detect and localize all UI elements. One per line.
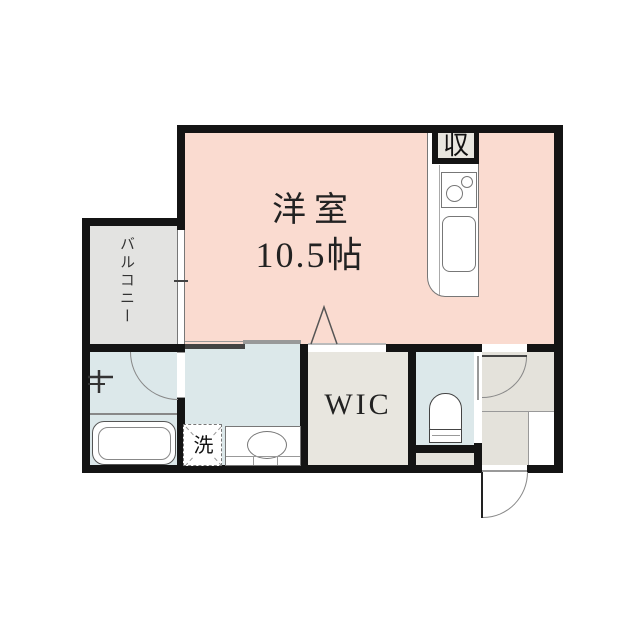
balcony-window	[177, 230, 185, 344]
wall-balcony-top	[82, 218, 185, 226]
vanity-drawer-div-2	[277, 456, 278, 465]
vanity-counter	[225, 426, 301, 466]
wic-label: WIC	[308, 388, 408, 422]
entrance-door-arc	[483, 472, 528, 518]
main-room-label: 洋室 10.5帖	[185, 190, 435, 278]
entry-tataki-floor	[528, 412, 554, 465]
balcony-label: バルコニー	[116, 236, 137, 341]
balcony-window-tick	[174, 280, 188, 282]
bathtub-inner	[98, 427, 171, 460]
main-room-size: 10.5帖	[185, 233, 435, 278]
wall-balcony-bottom	[82, 344, 185, 352]
bathroom-doorway	[177, 352, 185, 398]
wall-top	[177, 125, 563, 133]
floor-plan: 収 洗 洋室 10.5帖 バルコニー WIC	[0, 0, 640, 640]
wall-bottom-left	[82, 465, 482, 473]
toilet-icon	[429, 393, 462, 432]
wall-bottom-right	[527, 465, 563, 473]
vanity-sink-icon	[247, 431, 287, 459]
wall-hall-top	[527, 344, 563, 352]
faucet-icon	[86, 368, 116, 396]
entry-floor	[482, 412, 528, 465]
kitchen-counter-line	[439, 165, 440, 295]
entry-tataki-line	[528, 411, 529, 465]
stove-burner-large	[446, 185, 463, 202]
bath-floor-edge	[90, 413, 177, 415]
washer-pan: 洗	[183, 424, 222, 466]
washer-label: 洗	[194, 436, 214, 456]
wic-folding-door-icon	[305, 305, 345, 347]
wall-wic-left	[300, 344, 308, 465]
wall-right	[554, 125, 563, 473]
wall-toilet-bottom	[408, 445, 482, 453]
toilet-tank	[429, 429, 462, 443]
wall-mainroom-left	[177, 125, 185, 230]
storage-label: 収	[443, 133, 469, 159]
washroom-slider-panel-1	[185, 344, 245, 349]
stove-icon	[441, 172, 477, 208]
main-room-name: 洋室	[185, 190, 435, 233]
toilet-door-leaf	[477, 356, 479, 400]
kitchen-sink-icon	[442, 216, 476, 272]
kitchen-storage-box: 収	[432, 133, 479, 164]
bathtub	[92, 421, 176, 465]
stove-burner-small	[461, 176, 473, 188]
vanity-drawer-div-1	[253, 456, 254, 465]
toilet-side-strip	[416, 453, 474, 465]
entry-step-line	[482, 411, 554, 412]
washroom-slider-panel-2	[243, 340, 301, 344]
vanity-drawer-line	[226, 456, 300, 457]
wall-toilet-top	[386, 344, 482, 352]
